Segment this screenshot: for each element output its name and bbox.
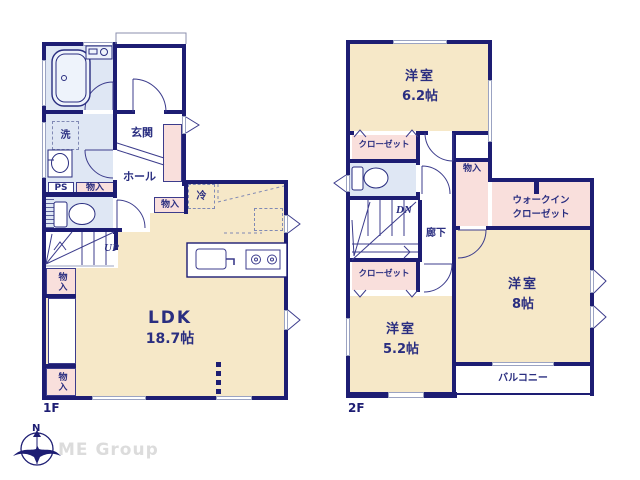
wall	[488, 142, 492, 182]
label-closet-lower: クローゼット	[352, 270, 416, 279]
window	[284, 215, 288, 233]
wall	[418, 200, 422, 258]
window	[346, 318, 350, 356]
wall	[452, 362, 492, 366]
wall	[42, 228, 122, 232]
window	[182, 116, 186, 134]
label-room6_2: 洋室	[380, 70, 460, 83]
label-room8: 洋室	[483, 278, 563, 291]
room-toilet2f-fill	[350, 163, 416, 196]
window	[216, 396, 252, 400]
wall	[42, 42, 83, 46]
room-ldk-fill-mid	[118, 232, 186, 268]
window	[284, 310, 288, 330]
wall	[146, 396, 216, 400]
wall	[113, 42, 117, 112]
window	[42, 122, 46, 178]
label-dn: DN	[396, 205, 412, 216]
wall	[182, 44, 186, 116]
label-up: UP	[104, 243, 119, 254]
wall	[284, 330, 288, 400]
wall	[113, 44, 186, 48]
label-room6_2-size: 6.2帖	[380, 90, 460, 103]
genkan-step-lines	[117, 143, 164, 165]
wall	[590, 230, 594, 270]
room-bath-fill	[46, 44, 113, 110]
window	[393, 40, 447, 44]
wall	[346, 131, 354, 135]
wall	[113, 114, 117, 150]
wall	[284, 233, 288, 310]
window	[83, 42, 113, 46]
wall	[346, 196, 420, 200]
wall	[416, 135, 420, 165]
wall	[346, 356, 350, 396]
label-wic-line2: クローゼット	[492, 210, 590, 220]
wall	[416, 192, 420, 200]
wall	[346, 159, 420, 163]
window	[346, 175, 350, 192]
window	[42, 60, 46, 106]
wall	[346, 192, 350, 318]
window	[388, 392, 424, 398]
wall	[184, 180, 188, 214]
porch-outline	[116, 33, 186, 44]
label-ldk-size: 18.7帖	[130, 332, 210, 346]
wall	[554, 362, 594, 366]
label-storage-2f: 物入	[456, 165, 488, 174]
window	[492, 362, 554, 366]
window	[590, 306, 594, 328]
wall	[452, 135, 456, 230]
fridge-label: 冷	[197, 192, 207, 202]
storage-box-ldk-bottom: 物入	[46, 368, 76, 396]
room-toilet1f-fill	[46, 197, 113, 228]
compass-north-label: N	[32, 424, 40, 434]
room-8-fill	[456, 230, 590, 362]
wall	[488, 40, 492, 80]
label-hall: ホール	[123, 171, 156, 182]
wall	[452, 158, 492, 162]
wall	[590, 366, 594, 396]
kitchen-cupboard	[254, 208, 283, 231]
wall	[44, 364, 76, 368]
wall	[182, 134, 186, 186]
label-corridor: 廊下	[426, 229, 446, 239]
toilet1f-shaft-hatch	[46, 198, 54, 228]
storage-label: 物入	[57, 272, 66, 292]
wall	[534, 182, 539, 194]
company-logo-text: ME Group	[58, 440, 159, 460]
label-closet-upper: クローゼット	[352, 141, 416, 150]
label-room8-size: 8帖	[483, 298, 563, 311]
wall	[590, 293, 594, 306]
wall	[346, 40, 393, 44]
label-balcony: バルコニー	[456, 374, 590, 384]
wall	[186, 180, 288, 184]
window	[488, 80, 492, 142]
wall	[346, 392, 388, 398]
room-ldk-fill-passage	[150, 213, 186, 232]
compass-icon	[13, 430, 61, 465]
wall	[486, 226, 594, 230]
wall	[488, 178, 594, 182]
storage-box-hall: 物入	[154, 197, 186, 213]
wall	[590, 178, 594, 230]
label-room5_2: 洋室	[361, 323, 441, 336]
wall	[346, 40, 350, 175]
wall	[452, 131, 492, 135]
wall	[416, 262, 420, 292]
ldk-counter-unit	[48, 298, 76, 364]
label-wic-line1: ウォークイン	[492, 196, 590, 206]
fridge: 冷	[188, 184, 215, 209]
label-floor1: 1F	[43, 402, 60, 414]
wall	[42, 396, 92, 400]
label-genkan: 玄関	[131, 127, 153, 138]
storage-label: 物入	[57, 372, 66, 392]
storage-box-stairs: 物入	[46, 268, 76, 295]
window	[590, 270, 594, 293]
floorplan-canvas: PS 物入 物入 物入 物入 洗 冷	[0, 0, 640, 480]
label-floor2: 2F	[348, 402, 365, 414]
label-ldk: LDK	[130, 310, 210, 327]
washer-label: 洗	[61, 131, 71, 141]
wall	[590, 328, 594, 366]
label-room5_2-size: 5.2帖	[361, 343, 441, 356]
wall	[346, 258, 422, 262]
wall	[113, 110, 135, 114]
wall	[44, 294, 76, 298]
wall	[44, 110, 83, 114]
wall	[447, 40, 492, 44]
window	[92, 396, 146, 400]
washing-machine: 洗	[52, 121, 79, 150]
wall	[44, 192, 115, 197]
wall	[284, 180, 288, 215]
storage-label: 物入	[161, 201, 179, 210]
shoe-cabinet	[163, 124, 182, 182]
wall	[252, 396, 288, 400]
room-6_2-fill	[350, 44, 488, 131]
